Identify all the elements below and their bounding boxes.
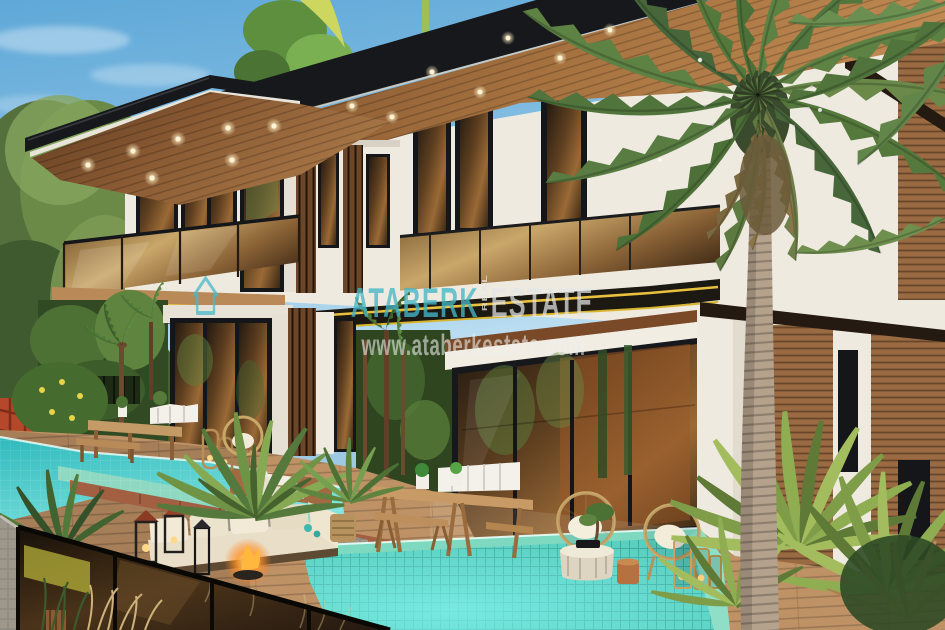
slat-column-2 xyxy=(343,145,363,293)
left-glass-doors xyxy=(170,318,272,456)
white-chairs xyxy=(150,404,198,424)
dry-frond-cluster xyxy=(739,135,791,235)
scene xyxy=(0,0,945,630)
villa-render: ATABERK REAL ESTATE www.ataberkestate.co… xyxy=(0,0,945,630)
